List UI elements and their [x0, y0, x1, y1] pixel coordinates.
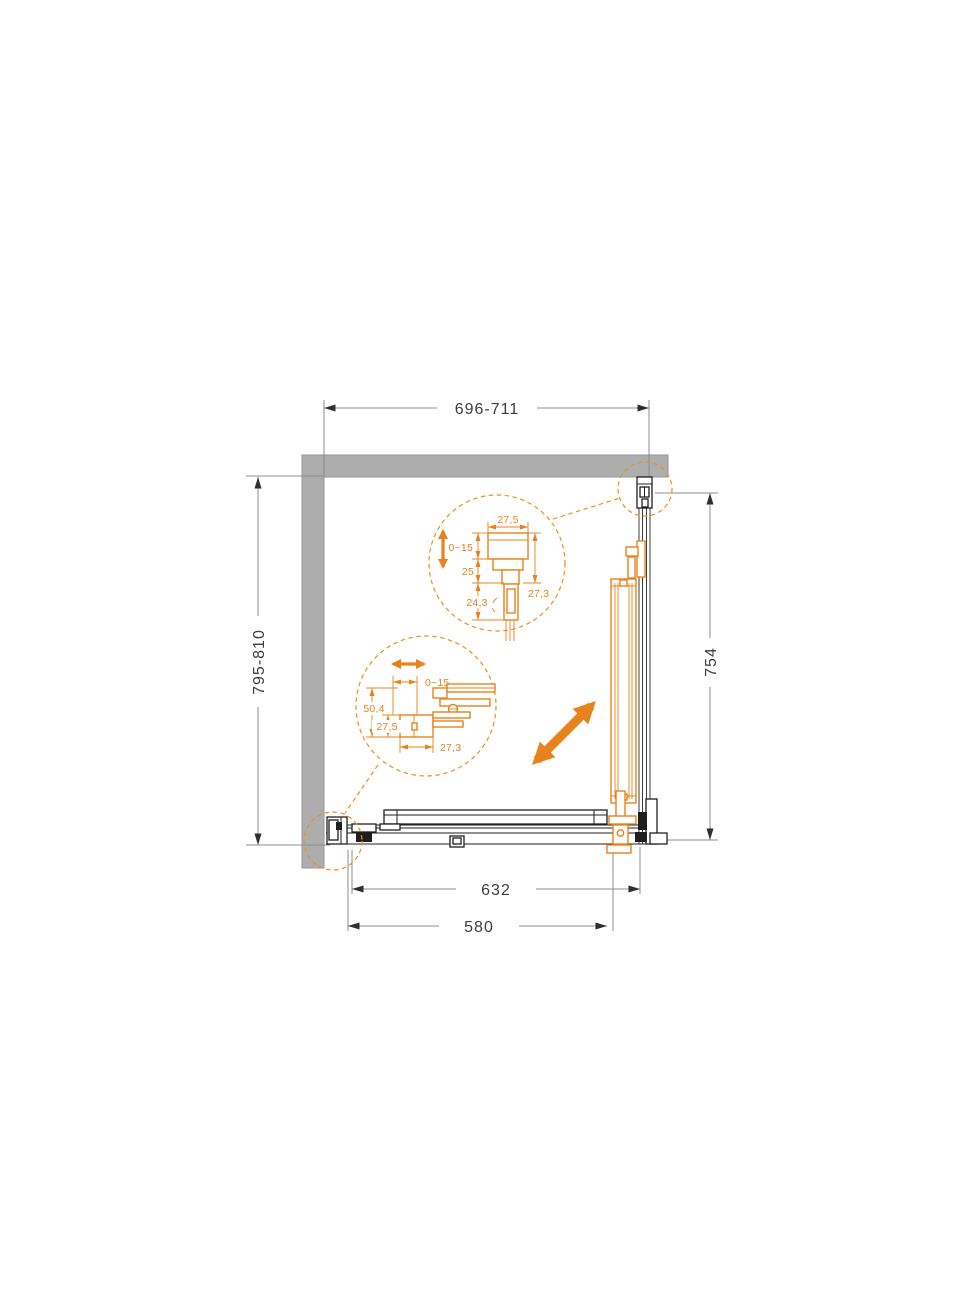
detail-lower-275-label: 27,5 [376, 721, 397, 733]
sliding-door-right [611, 579, 636, 803]
detail-view-wall-profile: 27,5 0~15 25 24,3 27,3 [429, 495, 565, 641]
corner-profile-bottom-right [635, 799, 667, 844]
installation-diagram: 696-711 795-810 754 632 580 [0, 0, 975, 1300]
detail-lower-504-label: 50,4 [363, 703, 384, 715]
detail-upper-adjust-label: 0~15 [449, 542, 473, 554]
detail-upper-243-label: 24,3 [466, 597, 487, 609]
diagonal-slide-arrow-icon [537, 706, 591, 760]
dimension-top-width: 696-711 [324, 398, 649, 508]
door-top-roller [626, 541, 645, 578]
detail-upper-25-label: 25 [462, 566, 474, 578]
detail-lower-273-label: 27,3 [440, 742, 461, 754]
sliding-door-bottom [384, 810, 607, 824]
detail-leader-bottom [345, 765, 378, 813]
dimension-door-panel: 632 [352, 847, 640, 899]
dimension-top-width-label: 696-711 [455, 401, 520, 418]
dimension-left-depth-label: 795-810 [251, 629, 268, 695]
wall-profile-top [637, 477, 652, 508]
wall-profile-bottom [327, 817, 347, 844]
dimension-door-opening-label: 580 [464, 919, 494, 936]
dimension-right-panel-label: 754 [703, 647, 720, 677]
detail-leader-top [553, 498, 620, 519]
detail-upper-273-label: 27,3 [528, 588, 549, 600]
page: { "diagram": { "type": "shower-enclosure… [0, 0, 975, 1300]
dimension-right-panel: 754 [655, 493, 721, 840]
detail-upper-width-label: 27,5 [497, 514, 518, 526]
detail-lower-adjust-label: 0~15 [425, 677, 449, 689]
dimension-door-panel-label: 632 [481, 882, 511, 899]
detail-view-floor-profile: 0~15 50,4 27,5 27,3 [356, 636, 496, 776]
